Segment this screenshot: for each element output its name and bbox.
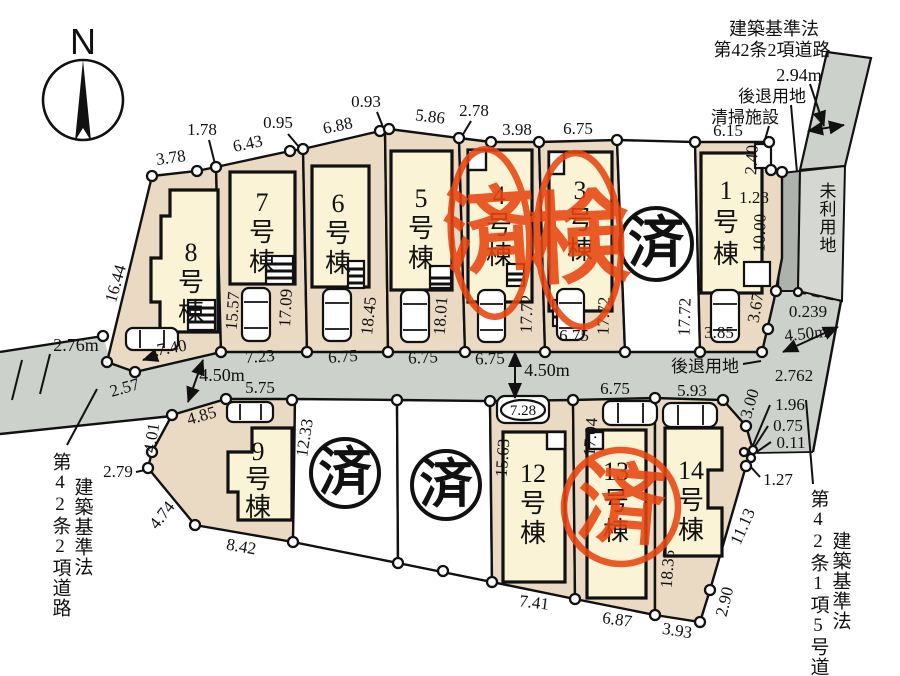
dim-label: 1.96 xyxy=(775,395,805,414)
dim-label: 15.63 xyxy=(492,438,514,477)
unused-land-label: 未利用地 xyxy=(817,182,837,254)
svg-text:済: 済 xyxy=(628,213,685,275)
dim-label: 0.11 xyxy=(776,433,805,452)
svg-text:14: 14 xyxy=(678,456,704,485)
car-icon xyxy=(603,401,657,425)
dim-label: 4.74 xyxy=(145,497,179,533)
svg-text:号: 号 xyxy=(249,218,275,247)
dim-label: 17.72 xyxy=(674,298,694,337)
dim-label: 6.75 xyxy=(563,119,593,138)
dim-label: 3.98 xyxy=(502,120,532,139)
site-plan: N 3.78 1.78 6.43 0.95 6.88 0.93 5.86 2.7… xyxy=(0,0,900,676)
svg-text:棟: 棟 xyxy=(245,493,271,522)
left-road-name: 第42条2項道路 xyxy=(50,452,72,618)
svg-text:棟: 棟 xyxy=(713,240,739,269)
dim-label: 5.93 xyxy=(677,381,707,400)
car-icon xyxy=(242,288,270,341)
dim-label: 2.94m xyxy=(776,65,822,85)
svg-text:検: 検 xyxy=(526,182,633,298)
stamp-done-lot11: 済 xyxy=(412,451,480,519)
dim-label: 7.28 xyxy=(510,403,536,419)
car-icon xyxy=(663,403,717,427)
svg-text:号: 号 xyxy=(520,489,546,518)
dim-label: 2.78 xyxy=(459,101,489,120)
svg-text:号: 号 xyxy=(713,208,739,237)
compass-needle-icon xyxy=(75,60,91,141)
svg-text:済: 済 xyxy=(573,455,670,559)
svg-text:済: 済 xyxy=(420,455,474,514)
dim-label: 1.27 xyxy=(763,470,793,489)
svg-text:号: 号 xyxy=(678,486,704,515)
car-icon xyxy=(323,289,351,341)
dim-label: 2.79 xyxy=(103,462,133,481)
dim-label: 6.43 xyxy=(231,131,264,156)
car-icon xyxy=(401,290,429,342)
svg-text:棟: 棟 xyxy=(408,244,434,273)
svg-text:12: 12 xyxy=(520,459,546,488)
setback-label-top: 後退用地 xyxy=(738,87,806,106)
dim-label: 5.75 xyxy=(245,378,275,397)
svg-text:済: 済 xyxy=(319,443,373,502)
building-label-14: 14号棟 xyxy=(678,456,704,545)
dim-label: 6.87 xyxy=(601,608,634,631)
svg-text:号: 号 xyxy=(325,219,351,248)
svg-text:棟: 棟 xyxy=(325,249,351,278)
right-road-law: 建築基準法 xyxy=(830,531,852,631)
setback-label-mid: 後退用地 xyxy=(671,357,739,376)
dim-label: 1.78 xyxy=(187,120,217,139)
dim-label: 0.93 xyxy=(351,92,381,111)
dim-label: 4.50m xyxy=(524,360,570,380)
dim-label: 6.75 xyxy=(475,348,505,368)
left-road-law: 建築基準法 xyxy=(72,477,94,577)
dim-label: 2.40 xyxy=(741,144,762,175)
top-road-name-line1: 建築基準法 xyxy=(729,19,819,39)
cleaning-facility-label: 清掃施設 xyxy=(711,108,779,127)
dim-label: 18.45 xyxy=(357,296,380,336)
svg-text:号: 号 xyxy=(178,268,204,297)
svg-text:棟: 棟 xyxy=(520,519,546,548)
dim-label: 6.75 xyxy=(600,379,630,398)
compass: N xyxy=(43,21,123,141)
building-label-12: 12号棟 xyxy=(520,459,546,548)
svg-text:9: 9 xyxy=(252,437,265,466)
dim-label: 5.86 xyxy=(414,105,446,127)
dim-label: 15.57 xyxy=(222,291,244,331)
top-road-name-line2: 第42条2項道路 xyxy=(714,40,831,60)
dim-label: 17.04 xyxy=(580,417,602,457)
dim-label: 3.78 xyxy=(155,146,187,169)
dim-label: 3.85 xyxy=(704,323,734,342)
svg-text:棟: 棟 xyxy=(678,516,704,545)
dim-label: 0.95 xyxy=(263,113,293,132)
equipment-box xyxy=(744,262,770,286)
dim-label: 4.50m xyxy=(199,365,245,385)
dim-label: 7.23 xyxy=(244,346,275,367)
stamp-done-lot10: 済 xyxy=(311,439,379,507)
car-icon xyxy=(227,402,273,422)
dim-label: 3.93 xyxy=(661,619,693,642)
dim-label: 1.28 xyxy=(739,188,769,207)
svg-text:号: 号 xyxy=(245,465,271,494)
svg-text:7: 7 xyxy=(256,188,269,217)
svg-text:棟: 棟 xyxy=(178,298,204,327)
svg-text:1: 1 xyxy=(720,176,733,205)
dim-label: 6.75 xyxy=(408,347,439,368)
dim-label: 10.00 xyxy=(749,214,769,253)
dim-label: 18.01 xyxy=(430,296,452,335)
dim-label: 2.76m xyxy=(53,335,99,355)
stamp-done-lot2: 済 xyxy=(620,208,692,280)
dim-label: 8.42 xyxy=(225,535,258,559)
dim-label: 0.239 xyxy=(789,302,827,321)
dim-label: 17.09 xyxy=(275,288,296,327)
dim-label: 6.75 xyxy=(327,346,358,367)
right-road-name: 第42条1項5号道路 xyxy=(808,489,830,676)
svg-text:5: 5 xyxy=(415,184,428,213)
svg-text:棟: 棟 xyxy=(249,248,275,277)
dim-label: 7.41 xyxy=(518,591,550,613)
svg-text:号: 号 xyxy=(408,214,434,243)
svg-text:8: 8 xyxy=(185,238,198,267)
north-label: N xyxy=(70,21,96,62)
dim-label: 2.762 xyxy=(775,366,813,385)
svg-text:6: 6 xyxy=(332,189,345,218)
dim-label: 6.88 xyxy=(321,113,354,138)
